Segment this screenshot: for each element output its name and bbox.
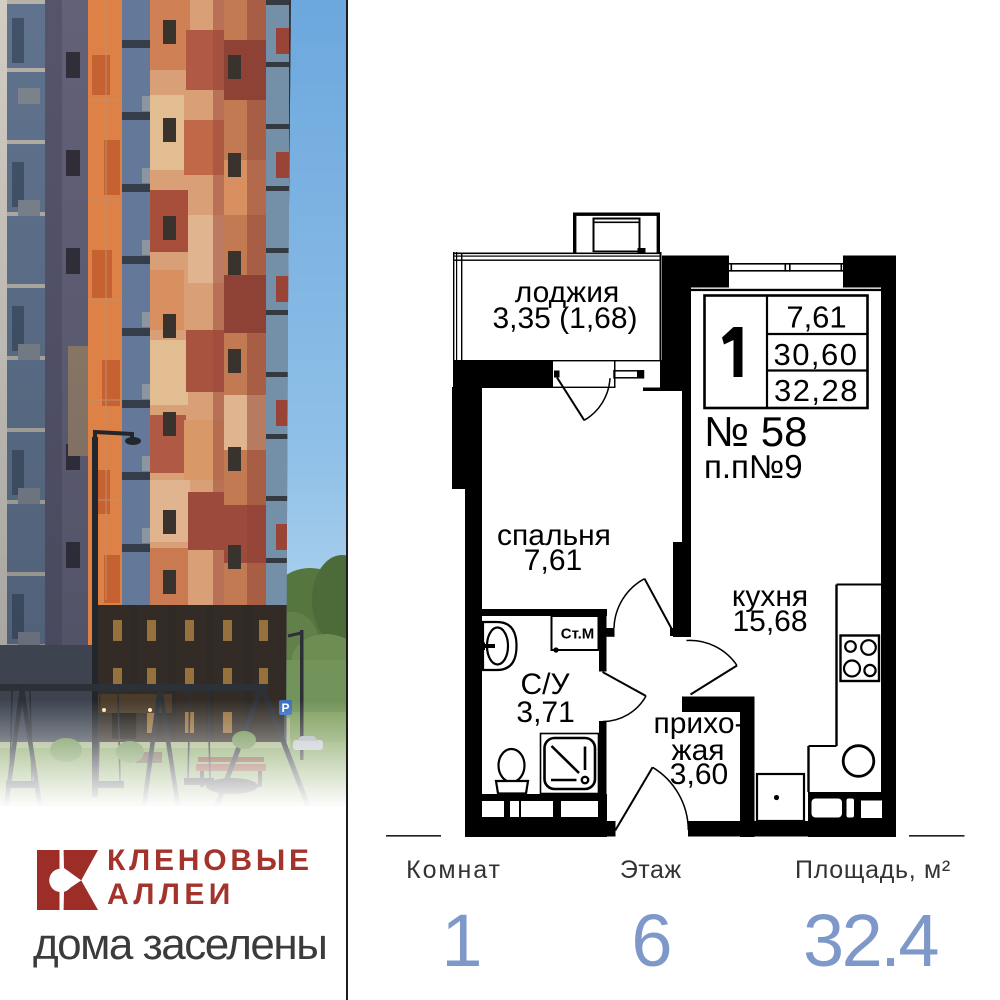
svg-text:Ст.М: Ст.М [561, 626, 595, 643]
svg-text:Этаж: Этаж [620, 856, 682, 884]
svg-text:Площадь, м²: Площадь, м² [795, 856, 951, 884]
svg-text:1: 1 [441, 899, 482, 982]
svg-text:7,61: 7,61 [786, 300, 846, 335]
svg-text:п.п№9: п.п№9 [704, 448, 803, 485]
svg-text:15,68: 15,68 [732, 605, 807, 638]
svg-text:Комнат: Комнат [406, 856, 502, 884]
svg-text:3,71: 3,71 [516, 696, 574, 729]
svg-text:3,35 (1,68): 3,35 (1,68) [492, 302, 637, 335]
svg-text:6: 6 [631, 899, 672, 982]
svg-text:3,60: 3,60 [670, 758, 728, 791]
svg-text:7,61: 7,61 [524, 544, 582, 577]
svg-text:32,28: 32,28 [774, 373, 859, 408]
svg-text:32.4: 32.4 [803, 899, 937, 982]
svg-text:30,60: 30,60 [773, 337, 858, 372]
